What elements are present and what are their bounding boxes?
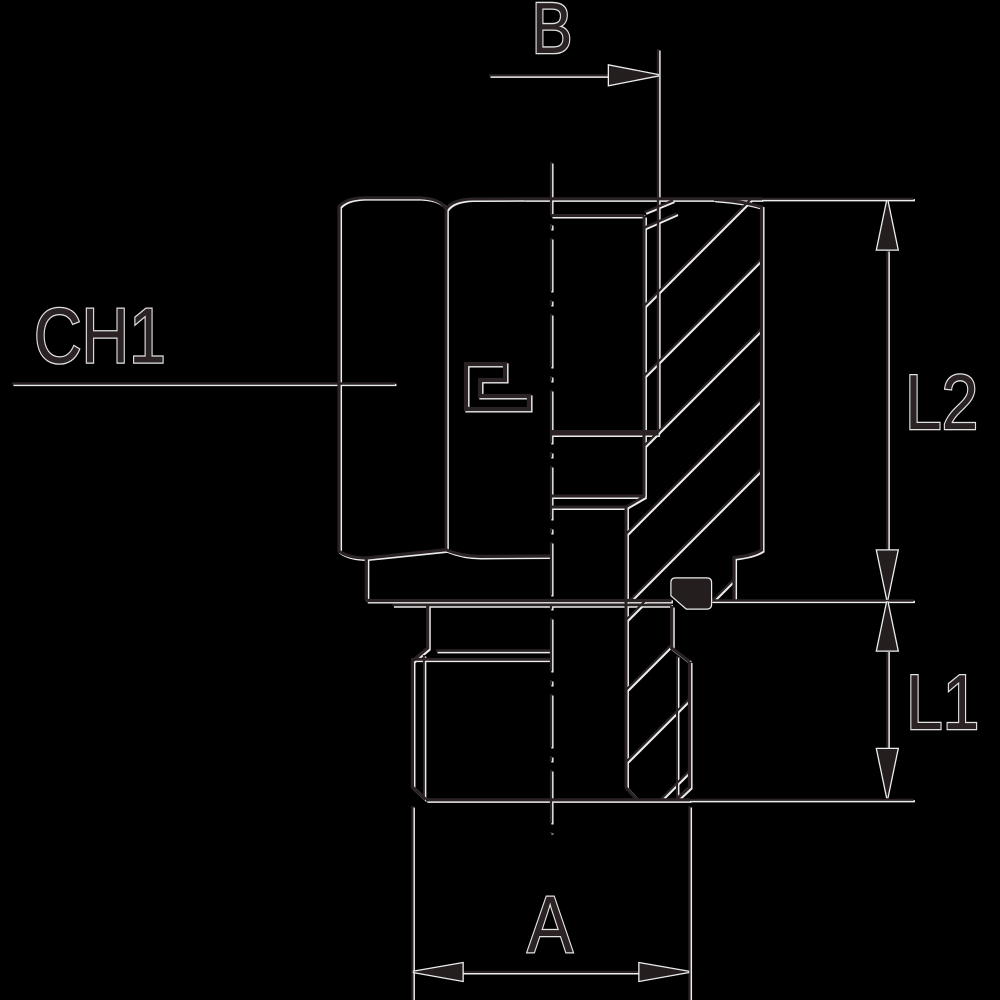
svg-text:L1: L1 — [906, 660, 979, 746]
svg-text:A: A — [527, 879, 573, 970]
svg-text:L2: L2 — [905, 360, 978, 446]
svg-text:B: B — [532, 0, 573, 69]
svg-text:CH1: CH1 — [34, 294, 166, 380]
